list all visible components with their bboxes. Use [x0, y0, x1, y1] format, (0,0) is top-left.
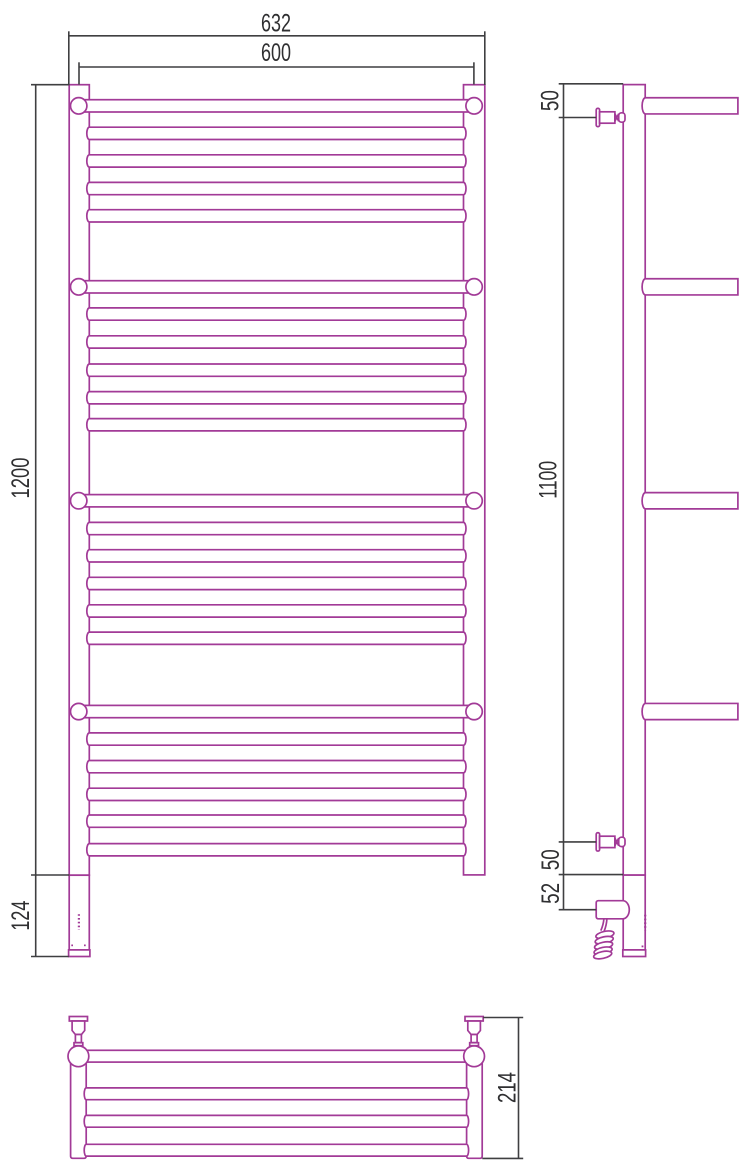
svg-text:1200: 1200 — [7, 458, 35, 499]
svg-text:50: 50 — [537, 90, 565, 111]
svg-text:632: 632 — [261, 9, 291, 37]
svg-text:124: 124 — [7, 901, 35, 931]
svg-text:214: 214 — [493, 1072, 521, 1103]
svg-text:1100: 1100 — [535, 461, 563, 499]
svg-text:600: 600 — [261, 39, 291, 67]
svg-text:50: 50 — [537, 849, 565, 870]
svg-text:52: 52 — [537, 883, 565, 904]
